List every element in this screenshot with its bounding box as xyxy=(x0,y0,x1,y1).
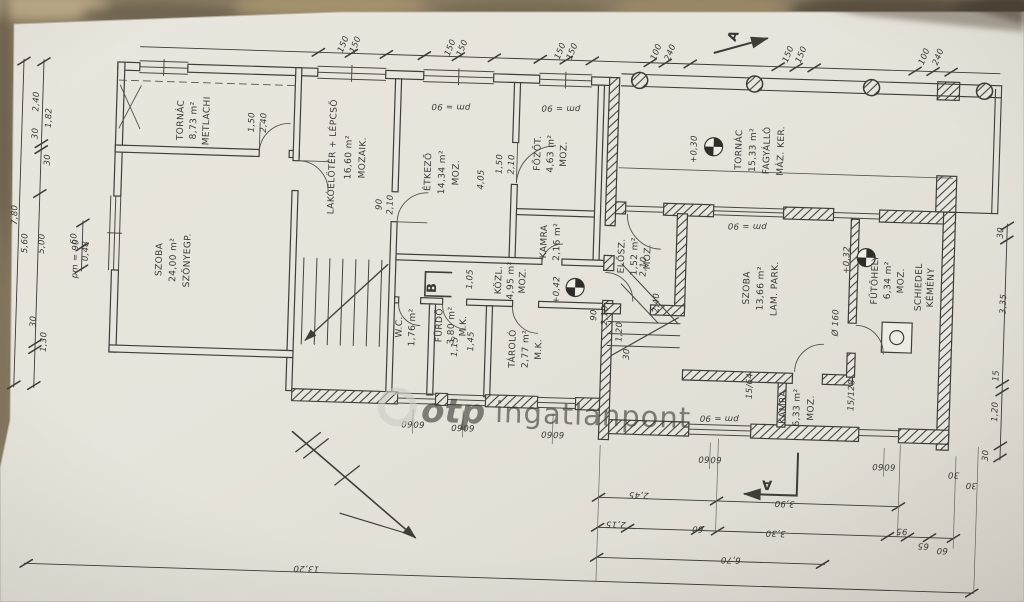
photo-vignette xyxy=(0,0,1024,602)
floorplan-photo: B +0,30 +0,32 +0,42 TORNÁC 8,73 m² METLA… xyxy=(0,0,1024,602)
floorplan-canvas: B +0,30 +0,32 +0,42 TORNÁC 8,73 m² METLA… xyxy=(0,0,1024,602)
